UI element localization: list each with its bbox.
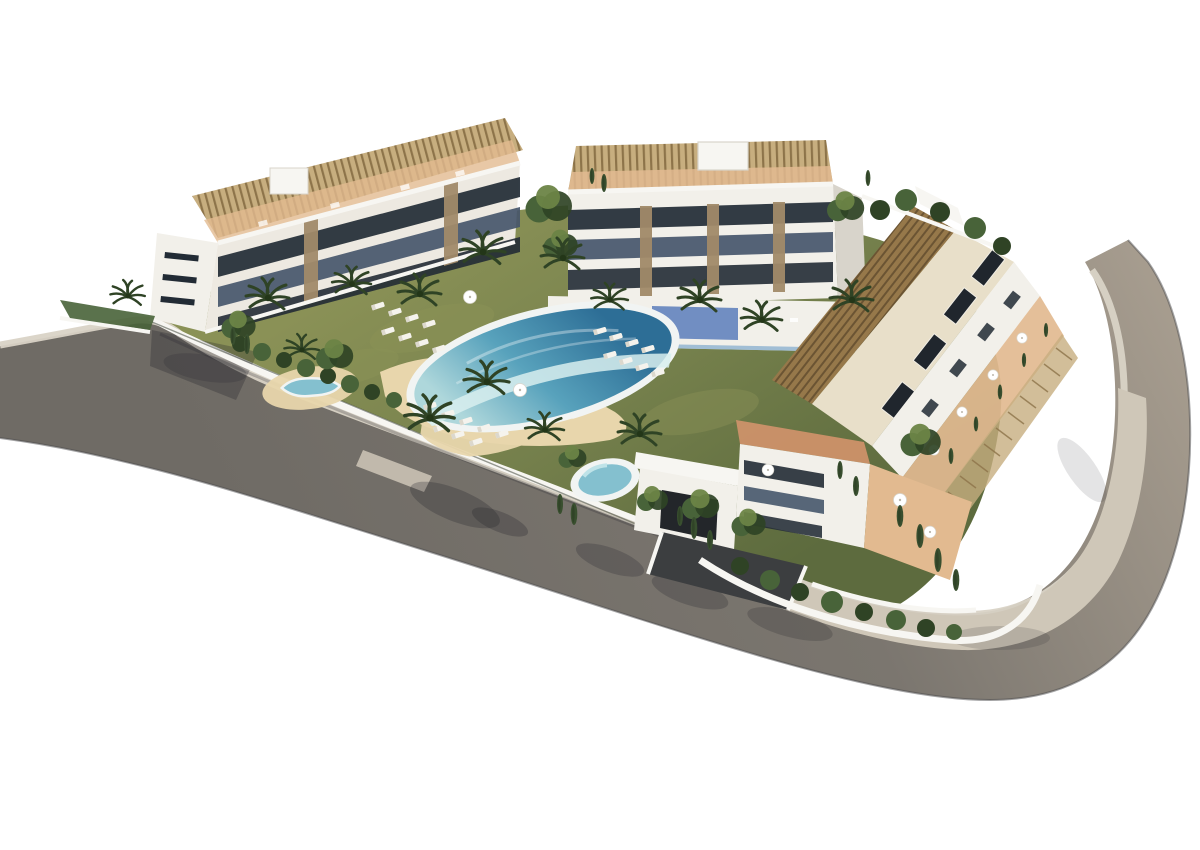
parasol <box>464 291 477 304</box>
cypress-tree <box>897 505 904 527</box>
cypress-tree <box>1022 353 1026 367</box>
rooftop-stair-box <box>270 168 308 194</box>
parasol <box>924 526 936 538</box>
cypress-tree <box>601 174 606 192</box>
cypress-tree <box>244 334 250 354</box>
rooftop-stair-tower <box>698 142 748 170</box>
parasol <box>762 464 774 476</box>
cypress-tree <box>853 476 859 496</box>
render-canvas <box>0 0 1200 850</box>
cypress-tree <box>974 417 979 432</box>
aerial-render <box>0 0 1200 850</box>
cypress-tree <box>677 506 683 526</box>
cypress-tree <box>998 385 1003 400</box>
north-apartment-block <box>568 140 866 306</box>
parasol <box>514 384 527 397</box>
parasol <box>1017 333 1027 343</box>
parasol <box>957 407 967 417</box>
cypress-tree <box>590 168 595 184</box>
cypress-tree <box>949 448 954 464</box>
parasol <box>988 370 998 380</box>
cypress-tree <box>916 524 923 548</box>
cypress-tree <box>837 461 842 479</box>
cypress-tree <box>934 548 941 572</box>
facade-window-bands <box>568 202 833 290</box>
cypress-tree <box>557 494 563 514</box>
cypress-tree <box>230 327 235 345</box>
cypress-tree <box>571 503 578 525</box>
cypress-tree <box>707 530 713 550</box>
cypress-tree <box>866 170 871 186</box>
parasol <box>894 494 907 507</box>
cypress-tree <box>691 517 698 539</box>
cypress-tree <box>1044 323 1048 337</box>
cypress-tree <box>953 569 960 591</box>
